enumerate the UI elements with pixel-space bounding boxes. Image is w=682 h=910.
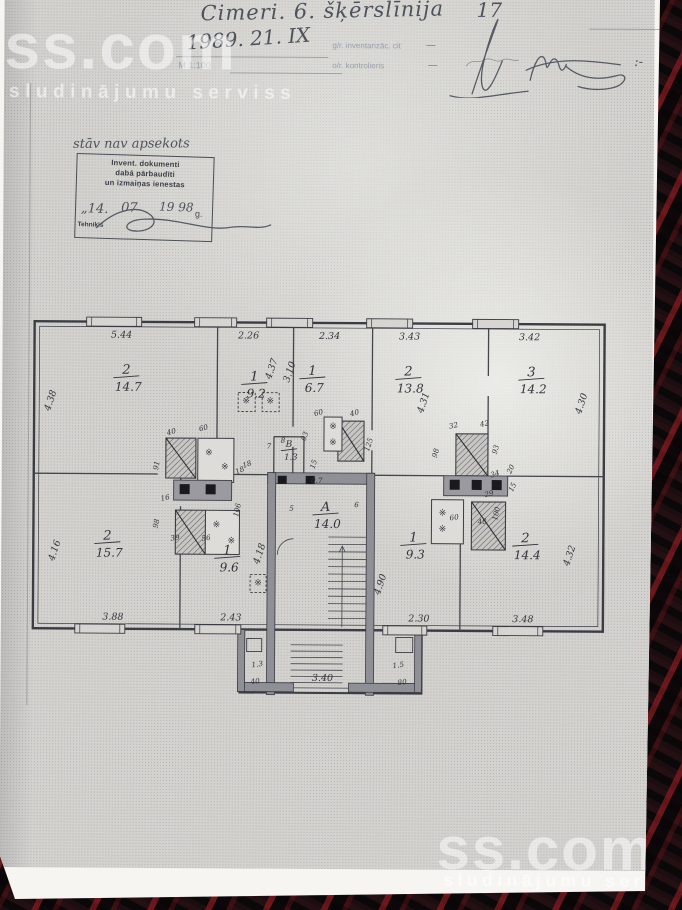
small-dimension: 60: [449, 512, 460, 522]
dimension-side: 4.37: [263, 356, 281, 381]
dimension-side: 4.18: [251, 542, 268, 566]
window: [195, 625, 241, 634]
room-area: 6.7: [305, 381, 325, 395]
header-rule-right: [589, 29, 661, 30]
small-dimension: 16: [160, 492, 171, 503]
dimension-side: 4.32: [561, 544, 578, 568]
room-number: A: [320, 500, 330, 515]
vent-glyph-icon: ※: [254, 579, 262, 589]
vent-glyph-icon: ※: [329, 422, 337, 432]
small-dimension: 39: [170, 532, 181, 542]
small-dimension: 1.3: [251, 659, 264, 669]
small-dimension: 15: [308, 458, 320, 470]
room-area: 13.8: [397, 381, 424, 395]
vent-glyph-icon: ※: [439, 525, 447, 535]
window: [367, 319, 413, 328]
room-number: 2: [520, 531, 529, 546]
floor-plan: 214.719.216.7213.8314.2215.719.6A14.019.…: [24, 313, 614, 717]
small-dimension: 56: [201, 533, 212, 543]
vent-glyph-icon: ※: [439, 509, 447, 519]
watermark-brand-top: ss.com: [4, 9, 237, 84]
dimension-bottom: 3.88: [102, 612, 123, 623]
small-dimension: 03: [299, 430, 311, 442]
dimension-top: 5.44: [111, 330, 132, 341]
stamp-note-handwriting: stāv nav apsekots: [73, 136, 190, 152]
vent-glyph-icon: ※: [221, 462, 229, 472]
window: [383, 626, 427, 635]
window: [195, 318, 237, 327]
vent-glyph-icon: ※: [228, 536, 236, 546]
dimension-side: 4.16: [46, 539, 63, 563]
small-dimension: 91: [151, 460, 162, 471]
dimension-bottom: 2.43: [219, 612, 241, 623]
verification-stamp: stāv nav apsekots Invent. dokumenti dabā…: [72, 139, 285, 255]
room-number: 3: [527, 365, 535, 380]
room-area: 14.0: [314, 517, 341, 531]
dimension-bottom: 3.48: [512, 614, 533, 625]
small-dimension: 8: [281, 436, 286, 445]
small-dimension: 40: [348, 407, 361, 418]
small-dimension: 60: [313, 407, 325, 418]
small-dimension: 5: [289, 504, 294, 513]
window: [493, 627, 543, 636]
room-area: 1.3: [284, 453, 298, 463]
small-dimension: 80: [397, 677, 408, 687]
vent-glyph-icon: ※: [205, 448, 213, 458]
small-dimension: 60: [198, 422, 210, 433]
watermark-tagline-bottom: sludinājumu serviss: [443, 870, 682, 893]
room-area: 15.7: [96, 546, 123, 560]
dimension-entry: 3.40: [312, 673, 333, 684]
scanned-photocopy-area: Cimeri. 6. šķērslīnija 17 1989. 21. IX g…: [0, 0, 655, 871]
room-number: 2: [121, 363, 130, 378]
vent-glyph-icon: ※: [242, 396, 250, 406]
inventory-dash: —: [426, 40, 435, 50]
small-dimension: 0.7: [311, 476, 323, 485]
small-dimension: 7: [267, 442, 272, 451]
inventory-label: g/r. inventarizāc. cit: [332, 41, 401, 50]
dimension-side: 4.30: [573, 392, 590, 416]
controller-dash2: :-: [634, 55, 643, 70]
controller-label: o/r. kontrolieris: [332, 61, 384, 70]
small-dimension: 93: [490, 443, 501, 455]
small-dimension: 18: [241, 458, 253, 470]
door-arc: [277, 539, 293, 555]
small-dimension: 15: [506, 481, 518, 494]
dimension-side: 4.38: [42, 389, 59, 413]
dimension-side: 3.10: [281, 360, 298, 384]
small-dimension: 6: [354, 500, 359, 509]
small-dimension: 32: [448, 420, 459, 431]
room-area: 14.4: [514, 548, 541, 562]
small-dimension: 1.5: [392, 660, 405, 670]
small-dimension: 98: [430, 447, 441, 459]
small-dimension: 40: [249, 676, 261, 686]
vent-glyph-icon: ※: [329, 438, 337, 448]
signature-controller: [520, 40, 635, 96]
dimension-top: 2.26: [237, 330, 259, 341]
room-area: 9.3: [406, 547, 426, 561]
watermark-tagline-top: sludinājumu serviss: [9, 81, 296, 105]
dimension-top: 3.43: [399, 331, 420, 342]
room-number: 2: [403, 364, 412, 379]
small-dimension: 48: [476, 516, 488, 526]
room-area: 9.6: [220, 560, 240, 574]
room-number: 2: [102, 529, 111, 544]
vent-glyph-icon: ※: [266, 397, 274, 407]
scale-underline: [230, 72, 342, 74]
window: [267, 318, 313, 327]
dimension-top: 2.34: [318, 331, 340, 342]
vent-glyph-icon: ※: [213, 520, 221, 530]
document-paper: Cimeri. 6. šķērslīnija 17 1989. 21. IX g…: [0, 0, 682, 910]
room-number: 1: [409, 531, 417, 546]
dimension-top: 3.42: [519, 332, 540, 343]
window: [87, 317, 142, 326]
controller-dash: —: [428, 60, 437, 70]
small-dimension: 98: [151, 518, 162, 529]
room-number: B: [285, 440, 293, 450]
room-area: 14.7: [115, 380, 142, 394]
room-number: 1: [308, 364, 316, 379]
handwritten-note-mark: [462, 52, 522, 72]
small-dimension: 106: [231, 502, 243, 518]
small-dimension: 40: [165, 426, 178, 437]
room-area: 14.2: [520, 382, 547, 396]
small-dimension: 20: [504, 463, 517, 476]
dimension-bottom: 2.30: [407, 613, 429, 624]
window: [75, 624, 125, 633]
room-number: 1: [250, 370, 258, 385]
signature-technician: [88, 197, 279, 248]
window: [473, 319, 519, 328]
